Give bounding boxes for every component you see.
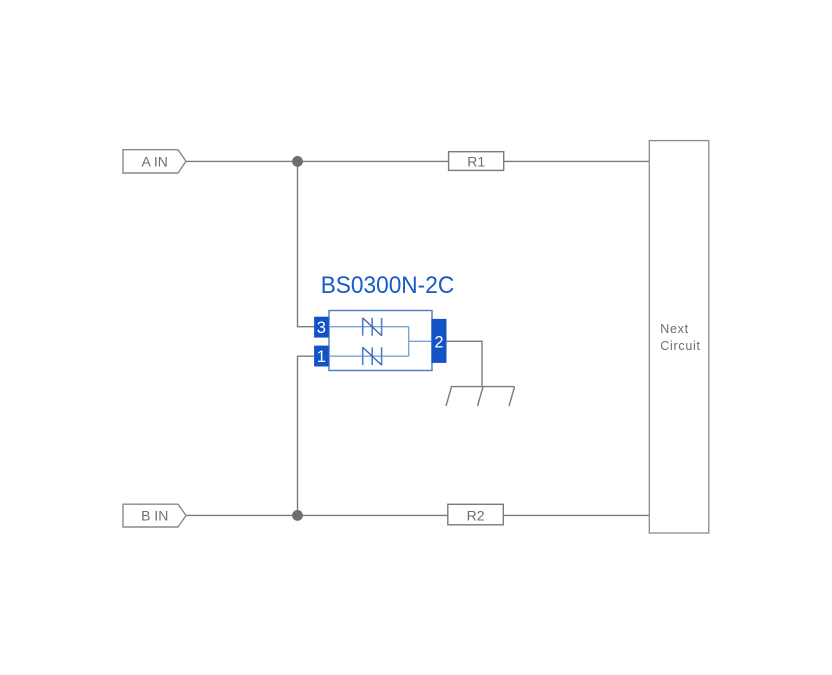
svg-text:3: 3 <box>317 319 326 337</box>
svg-text:Next: Next <box>660 322 689 336</box>
svg-text:B IN: B IN <box>141 508 168 524</box>
svg-text:A IN: A IN <box>141 153 167 169</box>
svg-text:2: 2 <box>434 333 443 351</box>
svg-text:1: 1 <box>317 348 326 366</box>
svg-text:R2: R2 <box>467 508 485 524</box>
svg-text:Circuit: Circuit <box>660 339 700 353</box>
svg-text:BS0300N-2C: BS0300N-2C <box>321 272 455 299</box>
svg-text:R1: R1 <box>467 153 485 169</box>
